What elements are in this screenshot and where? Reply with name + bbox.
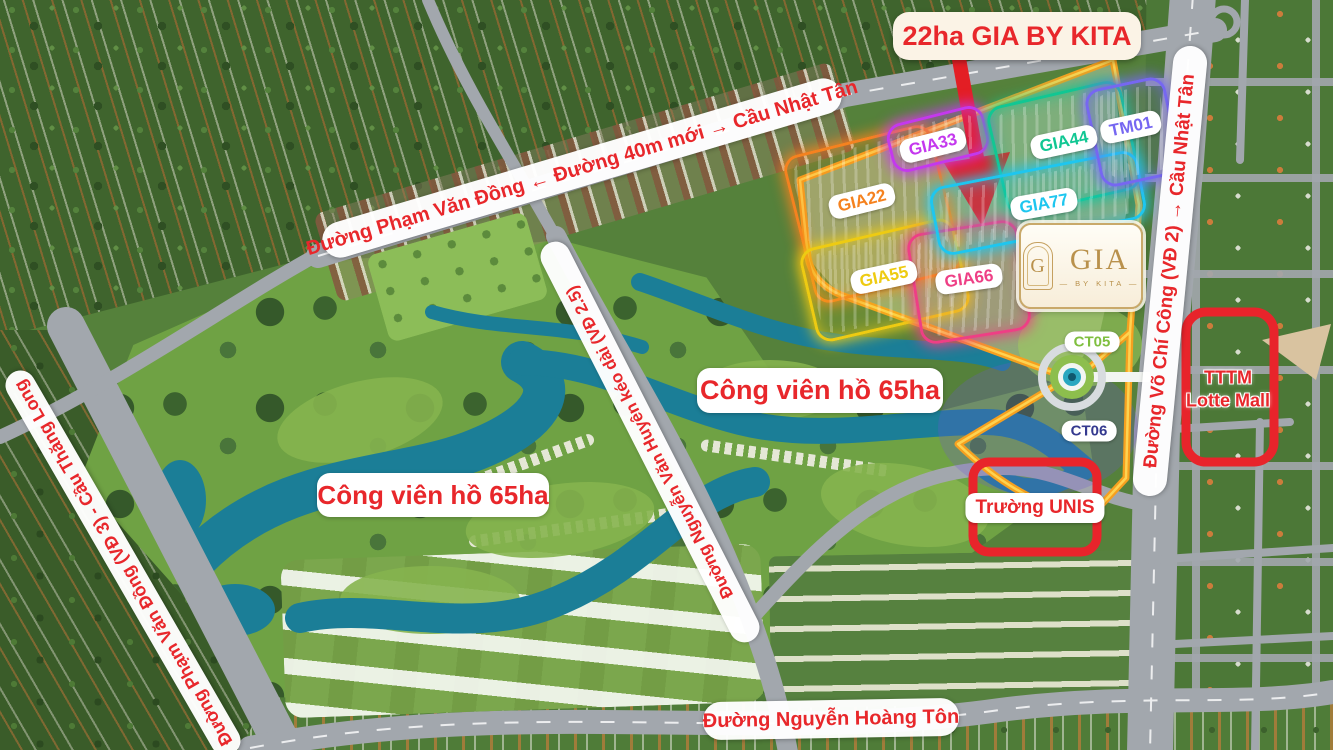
park-label-text: Công viên hồ 65ha (700, 375, 940, 406)
gia-monogram-letter: G (1030, 255, 1044, 278)
road-label-nguyen-hoang-ton: Đường Nguyễn Hoàng Tôn (703, 698, 960, 740)
masterplan-map: Đường Phạm Văn Đồng ← Đường 40m mới → Cầ… (0, 0, 1333, 750)
map-title: 22ha GIA BY KITA (893, 12, 1141, 60)
lotte-mall-label: TTTM Lotte Mall (1186, 367, 1270, 412)
unis-school-label-text: Trường UNIS (975, 497, 1094, 518)
lotte-mall-label-line2: Lotte Mall (1186, 389, 1270, 412)
map-title-text: 22ha GIA BY KITA (902, 21, 1131, 52)
park-label-west: Công viên hồ 65ha (317, 473, 549, 517)
road-label-text: Đường Nguyễn Hoàng Tôn (703, 705, 960, 732)
tower-label-ct05: CT05 (1065, 332, 1120, 353)
tower-label-text: CT05 (1074, 334, 1111, 351)
gia-logo-byline: BY KITA (1060, 279, 1140, 288)
park-label-east: Công viên hồ 65ha (697, 368, 943, 413)
unis-school-label: Trường UNIS (965, 493, 1104, 523)
tower-label-text: CT06 (1071, 423, 1108, 440)
tower-label-ct06: CT06 (1062, 421, 1117, 442)
lotte-mall-label-line1: TTTM (1186, 367, 1270, 390)
gia-logo-text: GIA BY KITA (1060, 245, 1140, 288)
gia-brand-card: G GIA BY KITA (1019, 223, 1143, 309)
park-label-text: Công viên hồ 65ha (317, 480, 548, 511)
gia-monogram-icon: G (1023, 242, 1053, 290)
zone-label-text: GIA66 (943, 266, 994, 292)
gia-logo-name: GIA (1070, 245, 1129, 275)
